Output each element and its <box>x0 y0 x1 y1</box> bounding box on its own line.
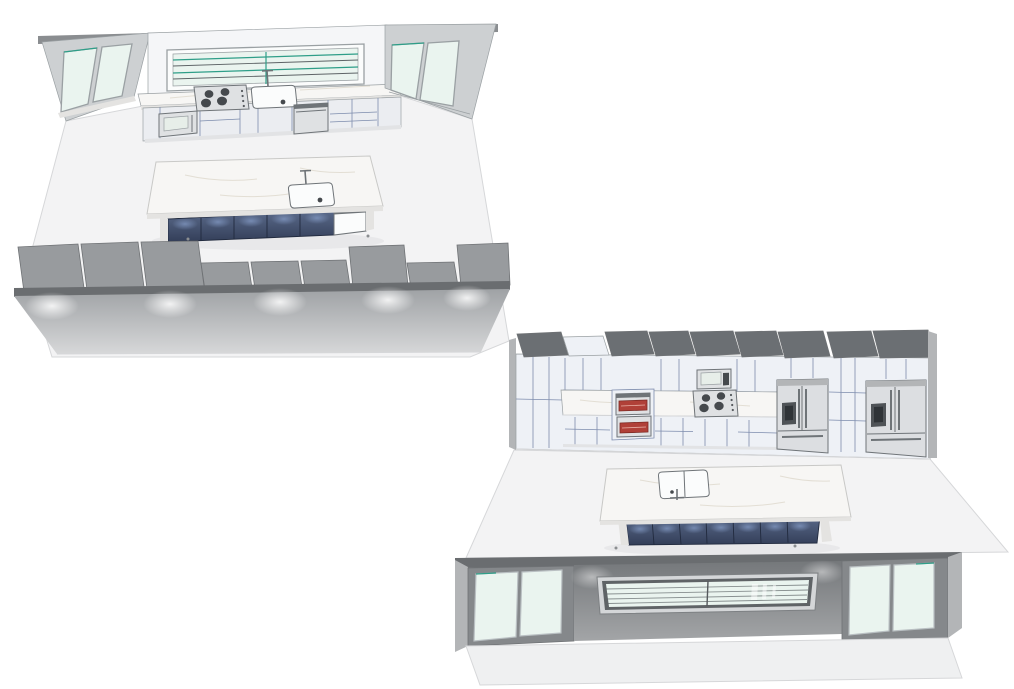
wall-right-cap <box>948 552 962 638</box>
built-in-microwave <box>159 111 197 137</box>
burner <box>717 392 725 400</box>
french-door-refrigerator-right <box>866 380 926 457</box>
sliding-glass-door-left <box>468 566 574 646</box>
sliding-glass-door-right <box>842 558 948 642</box>
kitchen-render-view-2 <box>455 330 1008 685</box>
island-dishwasher-panel <box>334 209 366 235</box>
burner <box>221 88 230 96</box>
burner <box>714 402 723 410</box>
ceiling-light-stub <box>794 545 797 548</box>
french-door-refrigerator-left <box>777 379 828 453</box>
dishwasher <box>294 103 328 134</box>
tall-cabinet-tops <box>517 330 936 358</box>
sink-drain <box>281 100 286 105</box>
burner <box>699 404 708 412</box>
burner <box>702 394 710 402</box>
window-wall <box>570 560 844 641</box>
ceiling-light-stub <box>367 235 370 238</box>
burner <box>205 90 214 98</box>
gas-cooktop <box>194 85 249 111</box>
tall-cabinet-run <box>509 330 937 459</box>
right-side-panel <box>928 331 937 458</box>
ceiling-light-stub <box>187 238 190 241</box>
gas-cooktop <box>693 390 738 417</box>
range-window <box>167 44 364 91</box>
left-side-panel <box>509 338 516 450</box>
cutaway-front-wall <box>455 552 962 685</box>
island-end-panel <box>160 217 168 245</box>
outer-floor-strip <box>466 638 962 685</box>
ceiling-light-stub <box>615 547 618 550</box>
sink-drain <box>318 198 323 203</box>
kitchen-render-view-1 <box>14 24 510 357</box>
picture-window <box>597 573 818 614</box>
island-countertop <box>600 465 851 525</box>
kitchen-island <box>600 465 851 556</box>
sink-drain <box>670 490 674 494</box>
double-wall-oven <box>612 389 654 440</box>
wall-left-cap <box>455 560 468 652</box>
kitchen-renders-svg <box>0 0 1014 689</box>
burner <box>201 99 211 108</box>
render-canvas <box>0 0 1014 689</box>
burner <box>217 97 227 106</box>
kitchen-island <box>147 156 384 250</box>
island-countertop <box>147 156 383 219</box>
wall-countertop <box>561 390 783 417</box>
island-double-sink <box>658 470 709 500</box>
built-in-microwave <box>697 369 731 389</box>
